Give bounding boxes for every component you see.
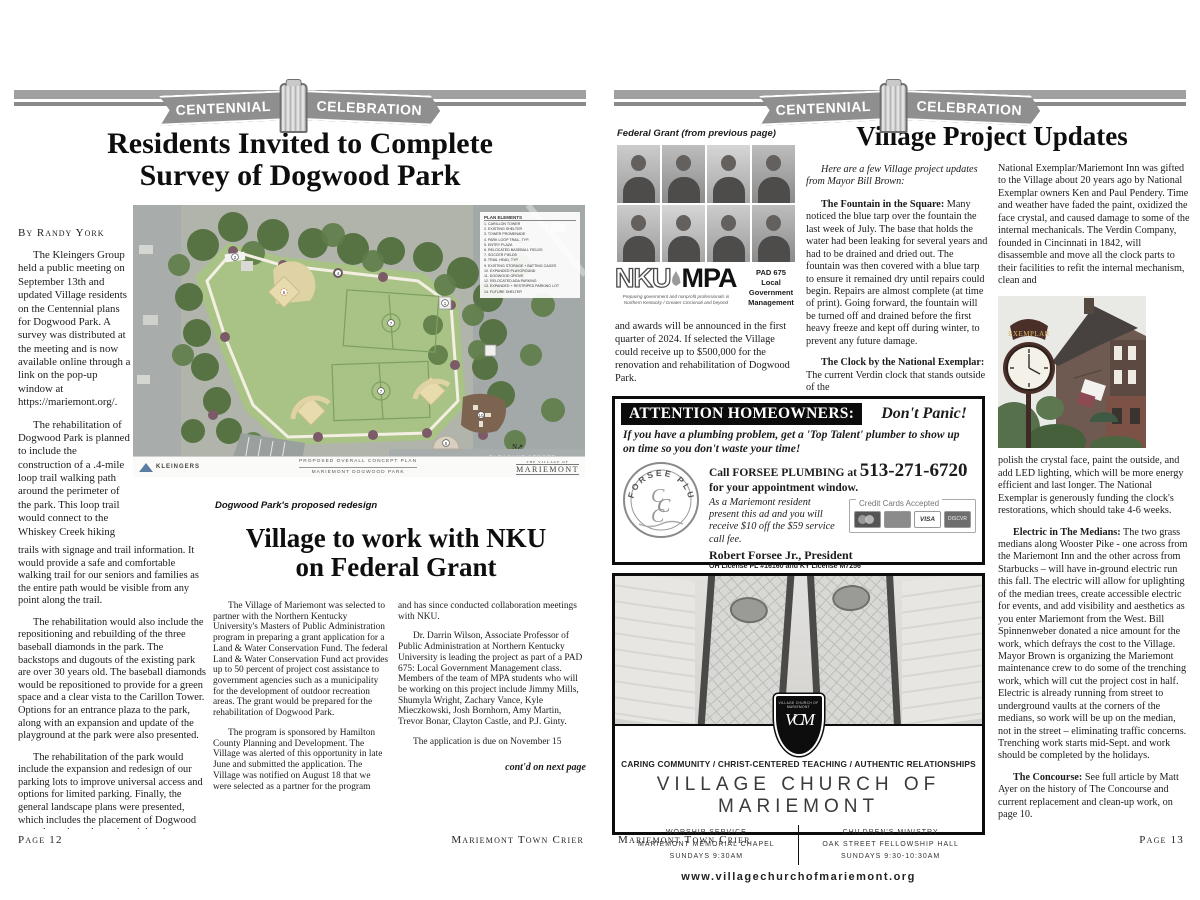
banner-word-right: CELEBRATION <box>302 90 441 126</box>
church-website: www.villagechurchofmariemont.org <box>615 871 982 883</box>
body-column-wide: trails with signage and trail informatio… <box>18 545 206 829</box>
course-label-line: Management <box>745 298 797 308</box>
course-label-line: Government <box>745 288 797 298</box>
mpa-wordmark: MPA <box>682 265 737 292</box>
paragraph: The Clock by the National Exemplar: The … <box>806 357 988 392</box>
ad-call-line: Call FORSEE PLUMBING at 513-271-6720 <box>709 460 976 482</box>
clock-photo-illustration: EXEMPLAR <box>998 296 1146 448</box>
publication-name: Mariemont Town Crier <box>618 834 751 846</box>
childrens-ministry-info: CHILDREN'S MINISTRYOAK STREET FELLOWSHIP… <box>799 827 982 864</box>
plan-title: PROPOSED OVERALL CONCEPT PLAN MARIEMONT … <box>299 458 417 475</box>
paragraph: The Village of Mariemont was selected to… <box>213 601 390 719</box>
mpa-team-photo-collage <box>617 145 795 262</box>
headshot-photo <box>662 205 705 263</box>
map-title-bar: KLEINGERS PROPOSED OVERALL CONCEPT PLAN … <box>133 456 585 477</box>
page-12: CENTENNIAL CELEBRATION Residents Invited… <box>0 0 600 900</box>
forsee-plumbing-ad: ATTENTION HOMEOWNERS: Don't Panic! If yo… <box>612 396 985 565</box>
crest-top-text: VILLAGE CHURCH OF MARIEMONT <box>776 701 822 709</box>
paragraph: The program is sponsored by Hamilton Cou… <box>213 728 390 792</box>
publication-name: Mariemont Town Crier <box>451 834 584 846</box>
nku-tagline: Preparing government and nonprofit profe… <box>615 294 737 306</box>
flame-icon <box>672 271 681 286</box>
carillon-tower-icon <box>880 83 908 133</box>
paragraph: Electric in The Medians: The two grass m… <box>998 527 1190 763</box>
paragraph-continuation: polish the crystal face, paint the outsi… <box>998 455 1190 517</box>
ad-offer-text: As a Mariemont resident present this ad … <box>709 497 843 546</box>
paragraph: The application is due on November 15 <box>398 737 586 748</box>
credit-cards-box: Credit Cards Accepted VISA DISCVR <box>849 499 976 533</box>
visa-icon: VISA <box>914 511 941 528</box>
banner-word-left: CENTENNIAL <box>759 90 885 125</box>
church-name: VILLAGE CHURCH OF MARIEMONT <box>615 774 982 818</box>
vcm-crest-icon: VILLAGE CHURCH OF MARIEMONT VCM <box>774 694 824 756</box>
exemplar-clock-photo: EXEMPLAR <box>998 296 1146 448</box>
updates-column-2: National Exemplar/Mariemont Inn was gift… <box>998 163 1190 839</box>
page-13: CENTENNIAL CELEBRATION Federal Grant (fr… <box>600 0 1200 900</box>
paragraph-continuation: and has since conducted collaboration me… <box>398 601 586 622</box>
forsee-plumbing-logo: FORSEE PLUMBING C C C <box>621 460 701 570</box>
ad-attention-header: ATTENTION HOMEOWNERS: <box>621 403 862 425</box>
byline: By Randy York <box>18 227 105 239</box>
legend-title: PLAN ELEMENTS <box>484 215 576 221</box>
credit-cards-label: Credit Cards Accepted <box>856 499 942 508</box>
carillon-tower-icon <box>280 83 308 133</box>
nku-mpa-logo: NKU MPA Preparing government and nonprof… <box>615 265 737 306</box>
mastercard-icon <box>854 511 881 528</box>
grant-column-2: and has since conducted collaboration me… <box>398 601 586 833</box>
village-church-ad: VILLAGE CHURCH OF MARIEMONT VCM CARING C… <box>612 573 985 835</box>
newsletter-spread: CENTENNIAL CELEBRATION Residents Invited… <box>0 0 1200 900</box>
paragraph: The rehabilitation of the park would inc… <box>18 752 206 829</box>
discover-icon: DISCVR <box>944 511 971 528</box>
paragraph: The Kleingers Group held a public meetin… <box>18 249 132 410</box>
course-label-line: Local <box>745 278 797 288</box>
dogwood-park-concept-map: PLEASANT STREET 4 5 6 7 7 1 10 2 PLAN EL… <box>133 205 585 477</box>
phone-number: 513-271-6720 <box>860 460 968 481</box>
paragraph-continuation: trails with signage and trail informatio… <box>18 545 206 608</box>
headshot-photo <box>617 205 660 263</box>
article-headline-dogwood-survey: Residents Invited to Complete Survey of … <box>15 128 585 193</box>
paragraph: The rehabilitation of Dogwood Park is pl… <box>18 419 132 539</box>
updates-intro: Here are a few Village project updates f… <box>806 164 988 189</box>
headshot-photo <box>617 145 660 203</box>
north-arrow: N↗ <box>512 443 523 451</box>
ad-pitch-text: If you have a plumbing problem, get a 'T… <box>623 429 974 457</box>
map-caption: Dogwood Park's proposed redesign <box>215 500 377 511</box>
legend-items: 1. CARILLON TOWER2. EXISTING SHELTER3. T… <box>484 222 576 295</box>
svg-text:10: 10 <box>478 413 484 418</box>
course-label: PAD 675LocalGovernmentManagement <box>745 268 797 309</box>
headshot-photo <box>707 145 750 203</box>
body-column-narrow: The Kleingers Group held a public meetin… <box>18 249 132 549</box>
centennial-banner: CENTENNIAL CELEBRATION <box>760 83 1041 133</box>
course-label-line: PAD 675 <box>745 268 797 278</box>
ad-license-text: OH License PL #16160 and KY License M725… <box>709 563 861 570</box>
map-legend: PLAN ELEMENTS 1. CARILLON TOWER2. EXISTI… <box>480 212 580 298</box>
grant-column-1: The Village of Mariemont was selected to… <box>213 601 390 833</box>
ad-dont-panic: Don't Panic! <box>872 405 976 423</box>
paragraph: The rehabilitation would also include th… <box>18 617 206 743</box>
banner-word-left: CENTENNIAL <box>159 90 285 125</box>
paragraph: Dr. Darrin Wilson, Associate Professor o… <box>398 631 586 727</box>
kleingers-logo-icon <box>139 463 153 472</box>
paragraph-continuation: National Exemplar/Mariemont Inn was gift… <box>998 163 1190 287</box>
banner-word-right: CELEBRATION <box>902 90 1041 126</box>
svg-text:EXEMPLAR: EXEMPLAR <box>1008 330 1050 338</box>
centennial-banner: CENTENNIAL CELEBRATION <box>160 83 441 133</box>
nku-wordmark: NKU <box>615 265 671 292</box>
amex-icon <box>884 511 911 528</box>
paragraph: The Concourse: See full article by Matt … <box>998 772 1190 822</box>
legend-item: 14. FUTURE SHELTER <box>484 290 576 295</box>
ad-president-name: Robert Forsee Jr., President <box>709 548 861 563</box>
headshot-photo <box>662 145 705 203</box>
nku-mpa-logo-block: NKU MPA Preparing government and nonprof… <box>615 265 797 309</box>
continued-article-caption: Federal Grant (from previous page) <box>617 128 776 139</box>
page-number: Page 13 <box>1139 834 1184 846</box>
updates-column-1: Here are a few Village project updates f… <box>806 164 988 392</box>
headshot-photo <box>707 205 750 263</box>
headshot-photo <box>752 205 795 263</box>
kleingers-logo: KLEINGERS <box>139 463 200 472</box>
paragraph: The Fountain in the Square: Many noticed… <box>806 199 988 348</box>
page-number: Page 12 <box>18 834 63 846</box>
crest-monogram: VCM <box>776 710 822 730</box>
ad-appointment-line: for your appointment window. <box>709 482 976 494</box>
headshot-photo <box>752 145 795 203</box>
continued-notice: cont'd on next page <box>398 762 586 773</box>
mariemont-logo: THE VILLAGE OF MARIEMONT <box>516 460 579 475</box>
federal-grant-continuation: and awards will be announced in the firs… <box>615 320 798 385</box>
article-headline-nku-grant: Village to work with NKU on Federal Gran… <box>205 524 587 582</box>
church-tagline: CARING COMMUNITY / CHRIST-CENTERED TEACH… <box>615 759 982 769</box>
